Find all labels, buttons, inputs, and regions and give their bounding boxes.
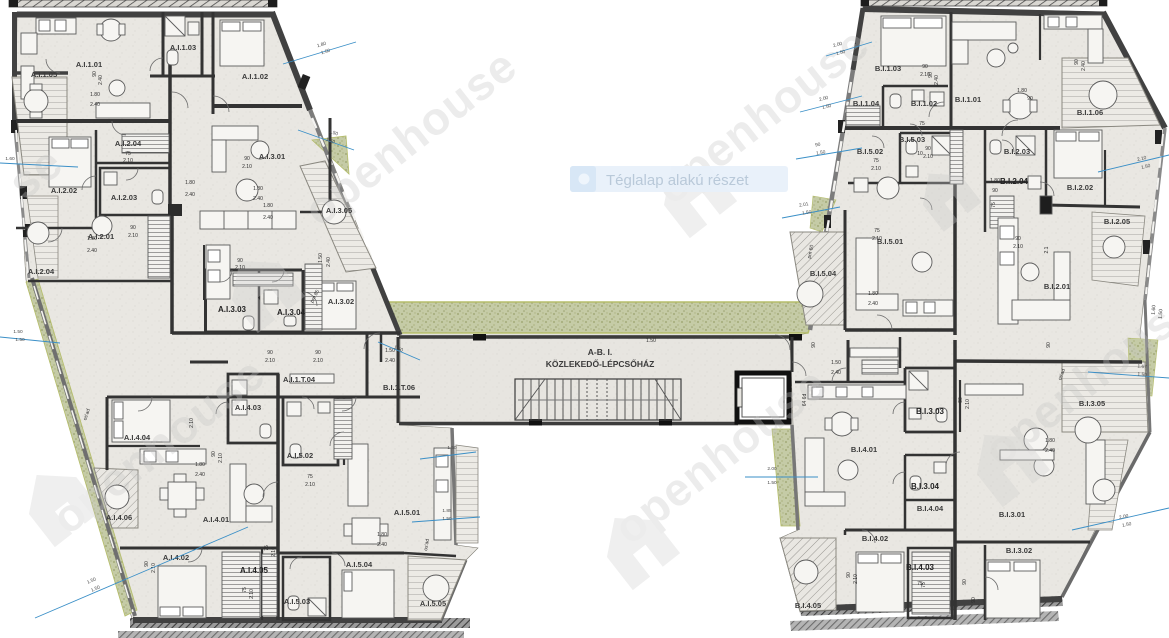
svg-text:1.50: 1.50 (1137, 372, 1147, 379)
svg-text:B.I.2.05: B.I.2.05 (1104, 217, 1130, 226)
svg-text:B.I.1.06: B.I.1.06 (1077, 108, 1103, 117)
svg-text:B.I.4.02: B.I.4.02 (862, 534, 888, 543)
svg-text:A.I.4.06: A.I.4.06 (106, 513, 132, 522)
svg-text:A.I.3.04: A.I.3.04 (277, 308, 306, 317)
svg-text:1.50: 1.50 (442, 516, 452, 522)
svg-text:A.I.4.05: A.I.4.05 (240, 566, 269, 575)
svg-text:1.50: 1.50 (646, 338, 656, 344)
svg-text:90: 90 (958, 397, 964, 403)
svg-text:2.10: 2.10 (242, 164, 252, 170)
svg-text:90: 90 (315, 350, 321, 356)
svg-text:2.40: 2.40 (253, 196, 263, 202)
svg-text:1.50: 1.50 (1158, 309, 1165, 319)
svg-text:1.67: 1.67 (1137, 364, 1147, 371)
svg-text:90: 90 (1046, 342, 1052, 348)
svg-text:B.I.3.01: B.I.3.01 (999, 510, 1025, 519)
svg-text:2.10: 2.10 (965, 399, 971, 409)
svg-text:90: 90 (267, 350, 273, 356)
svg-text:B.I.4.05: B.I.4.05 (795, 601, 821, 610)
svg-text:A.I.2.03: A.I.2.03 (111, 193, 137, 202)
svg-text:90: 90 (922, 64, 928, 70)
svg-text:A.I.2.02: A.I.2.02 (51, 186, 77, 195)
svg-text:A.I.4.01: A.I.4.01 (203, 515, 229, 524)
svg-text:A.I.4.04: A.I.4.04 (124, 433, 151, 442)
svg-text:90: 90 (811, 342, 817, 348)
svg-text:B.I.1.03: B.I.1.03 (875, 64, 901, 73)
svg-text:10: 10 (917, 151, 923, 157)
svg-text:A.I.1.02: A.I.1.02 (242, 72, 268, 81)
svg-text:75: 75 (307, 474, 313, 480)
svg-text:2.40: 2.40 (1081, 61, 1087, 71)
svg-text:B.I.3.04: B.I.3.04 (911, 482, 940, 491)
svg-text:1.80: 1.80 (195, 462, 205, 468)
svg-text:75: 75 (919, 121, 925, 127)
svg-text:1.80: 1.80 (1017, 88, 1027, 94)
svg-text:B.I.3.03: B.I.3.03 (916, 407, 945, 416)
svg-text:2.40: 2.40 (868, 301, 878, 307)
svg-text:75: 75 (264, 545, 270, 551)
svg-text:75: 75 (873, 158, 879, 164)
svg-text:2.10: 2.10 (872, 236, 882, 242)
svg-text:75: 75 (874, 228, 880, 234)
svg-text:1.80: 1.80 (990, 178, 1000, 184)
svg-text:A.I.5.02: A.I.5.02 (287, 451, 313, 460)
svg-text:2.1: 2.1 (1044, 246, 1050, 253)
svg-text:2.10: 2.10 (249, 589, 255, 599)
svg-text:90: 90 (992, 188, 998, 194)
svg-text:1.85: 1.85 (442, 508, 452, 514)
svg-text:1.50: 1.50 (13, 329, 23, 335)
svg-text:90: 90 (846, 572, 852, 578)
svg-text:2.40: 2.40 (87, 248, 97, 254)
svg-text:2.10: 2.10 (189, 418, 195, 428)
svg-text:90: 90 (1027, 96, 1033, 102)
svg-text:1.50: 1.50 (318, 253, 324, 263)
svg-text:B.I.4.03: B.I.4.03 (906, 563, 935, 572)
svg-text:B.I.2.04: B.I.2.04 (1000, 177, 1029, 186)
svg-text:1.60: 1.60 (1151, 305, 1158, 315)
svg-text:1.80: 1.80 (263, 203, 273, 209)
svg-text:B.I.2.03: B.I.2.03 (1004, 147, 1030, 156)
svg-text:B.I.2.01: B.I.2.01 (1044, 282, 1070, 291)
svg-text:2.40: 2.40 (1045, 448, 1055, 454)
svg-text:90: 90 (1074, 59, 1080, 65)
svg-text:2.00: 2.00 (767, 466, 777, 472)
svg-text:2.10: 2.10 (271, 547, 277, 557)
svg-text:2.10: 2.10 (123, 158, 133, 164)
svg-text:KÖZLEKEDŐ-LÉPCSŐHÁZ: KÖZLEKEDŐ-LÉPCSŐHÁZ (546, 358, 655, 369)
svg-text:A.I.5.04: A.I.5.04 (346, 560, 373, 569)
svg-text:2.10: 2.10 (313, 358, 323, 364)
svg-text:1.50: 1.50 (767, 480, 777, 486)
svg-text:2.10: 2.10 (235, 265, 245, 271)
svg-text:B.I.1.T.06: B.I.1.T.06 (383, 383, 415, 392)
svg-text:B.I.5.03: B.I.5.03 (899, 135, 925, 144)
svg-text:1.80: 1.80 (185, 180, 195, 186)
svg-text:2.10: 2.10 (1013, 244, 1023, 250)
svg-text:2.10: 2.10 (128, 233, 138, 239)
svg-text:90: 90 (925, 146, 931, 152)
svg-text:2.40: 2.40 (326, 257, 332, 267)
svg-text:B.I.1.02: B.I.1.02 (911, 99, 937, 108)
svg-text:1.80: 1.80 (868, 291, 878, 297)
svg-text:A.I.5.01: A.I.5.01 (394, 508, 420, 517)
svg-text:1.80: 1.80 (90, 92, 100, 98)
svg-text:2.10: 2.10 (920, 72, 930, 78)
svg-text:2.10: 2.10 (871, 166, 881, 172)
svg-text:75: 75 (991, 202, 997, 208)
svg-text:1.60: 1.60 (5, 156, 15, 162)
svg-text:2.40: 2.40 (195, 472, 205, 478)
svg-text:B.I.4.04: B.I.4.04 (917, 504, 944, 513)
svg-text:90: 90 (962, 579, 968, 585)
svg-text:A-B. I.: A-B. I. (588, 347, 613, 357)
svg-text:90: 90 (244, 156, 250, 162)
svg-text:A.I.3.05: A.I.3.05 (326, 206, 352, 215)
svg-text:A.I.5.05: A.I.5.05 (420, 599, 446, 608)
svg-text:1.50: 1.50 (15, 337, 25, 343)
svg-text:1.50: 1.50 (447, 445, 457, 451)
svg-text:75: 75 (242, 587, 248, 593)
svg-text:A.I.1.03: A.I.1.03 (170, 43, 196, 52)
svg-text:A.I.3.03: A.I.3.03 (218, 305, 247, 314)
svg-text:2.40: 2.40 (831, 370, 841, 376)
svg-text:2.10: 2.10 (218, 453, 224, 463)
svg-text:2.40: 2.40 (98, 75, 104, 85)
svg-text:A.I.3.01: A.I.3.01 (259, 152, 285, 161)
svg-text:1.50: 1.50 (831, 360, 841, 366)
svg-text:1.80: 1.80 (1045, 438, 1055, 444)
svg-text:Téglalap alakú részet: Téglalap alakú részet (606, 172, 749, 189)
svg-text:B.I.1.01: B.I.1.01 (955, 95, 981, 104)
svg-text:2.10: 2.10 (265, 358, 275, 364)
svg-text:A.I.4.03: A.I.4.03 (235, 403, 261, 412)
svg-text:A.I.2.04: A.I.2.04 (115, 139, 142, 148)
svg-text:75: 75 (921, 582, 927, 588)
svg-text:A.I.1.T.04: A.I.1.T.04 (283, 375, 316, 384)
svg-text:2.40: 2.40 (263, 215, 273, 221)
svg-text:90: 90 (1015, 236, 1021, 242)
svg-text:1.80: 1.80 (377, 532, 387, 538)
svg-text:B.I.5.04: B.I.5.04 (810, 269, 837, 278)
svg-text:2.40: 2.40 (934, 75, 940, 85)
svg-text:2.10: 2.10 (305, 482, 315, 488)
svg-text:B.I.4.01: B.I.4.01 (851, 445, 877, 454)
svg-text:75: 75 (125, 151, 131, 157)
svg-text:2.40: 2.40 (185, 192, 195, 198)
svg-text:90: 90 (144, 561, 150, 567)
svg-text:90: 90 (211, 451, 217, 457)
svg-text:2.40: 2.40 (385, 358, 395, 364)
svg-text:2.40: 2.40 (377, 542, 387, 548)
svg-text:A.I.1.01: A.I.1.01 (76, 60, 102, 69)
svg-text:B.I.1.04: B.I.1.04 (853, 99, 880, 108)
svg-text:B.I.3.02: B.I.3.02 (1006, 546, 1032, 555)
svg-text:90: 90 (971, 597, 977, 603)
svg-text:A.I.3.02: A.I.3.02 (328, 297, 354, 306)
svg-text:B.I.3.05: B.I.3.05 (1079, 399, 1105, 408)
svg-text:B.I.2.02: B.I.2.02 (1067, 183, 1093, 192)
svg-text:A.I.1.05: A.I.1.05 (31, 70, 57, 79)
svg-text:2.40: 2.40 (90, 102, 100, 108)
svg-text:90: 90 (237, 258, 243, 264)
svg-text:2.10: 2.10 (923, 154, 933, 160)
svg-text:A.I.2.04: A.I.2.04 (28, 267, 55, 276)
svg-text:1.80: 1.80 (253, 186, 263, 192)
svg-text:90: 90 (130, 225, 136, 231)
svg-text:64 6d: 64 6d (802, 394, 808, 407)
svg-text:A.I.5.03: A.I.5.03 (284, 597, 310, 606)
svg-text:1.80: 1.80 (87, 236, 97, 242)
svg-text:2.10: 2.10 (853, 574, 859, 584)
